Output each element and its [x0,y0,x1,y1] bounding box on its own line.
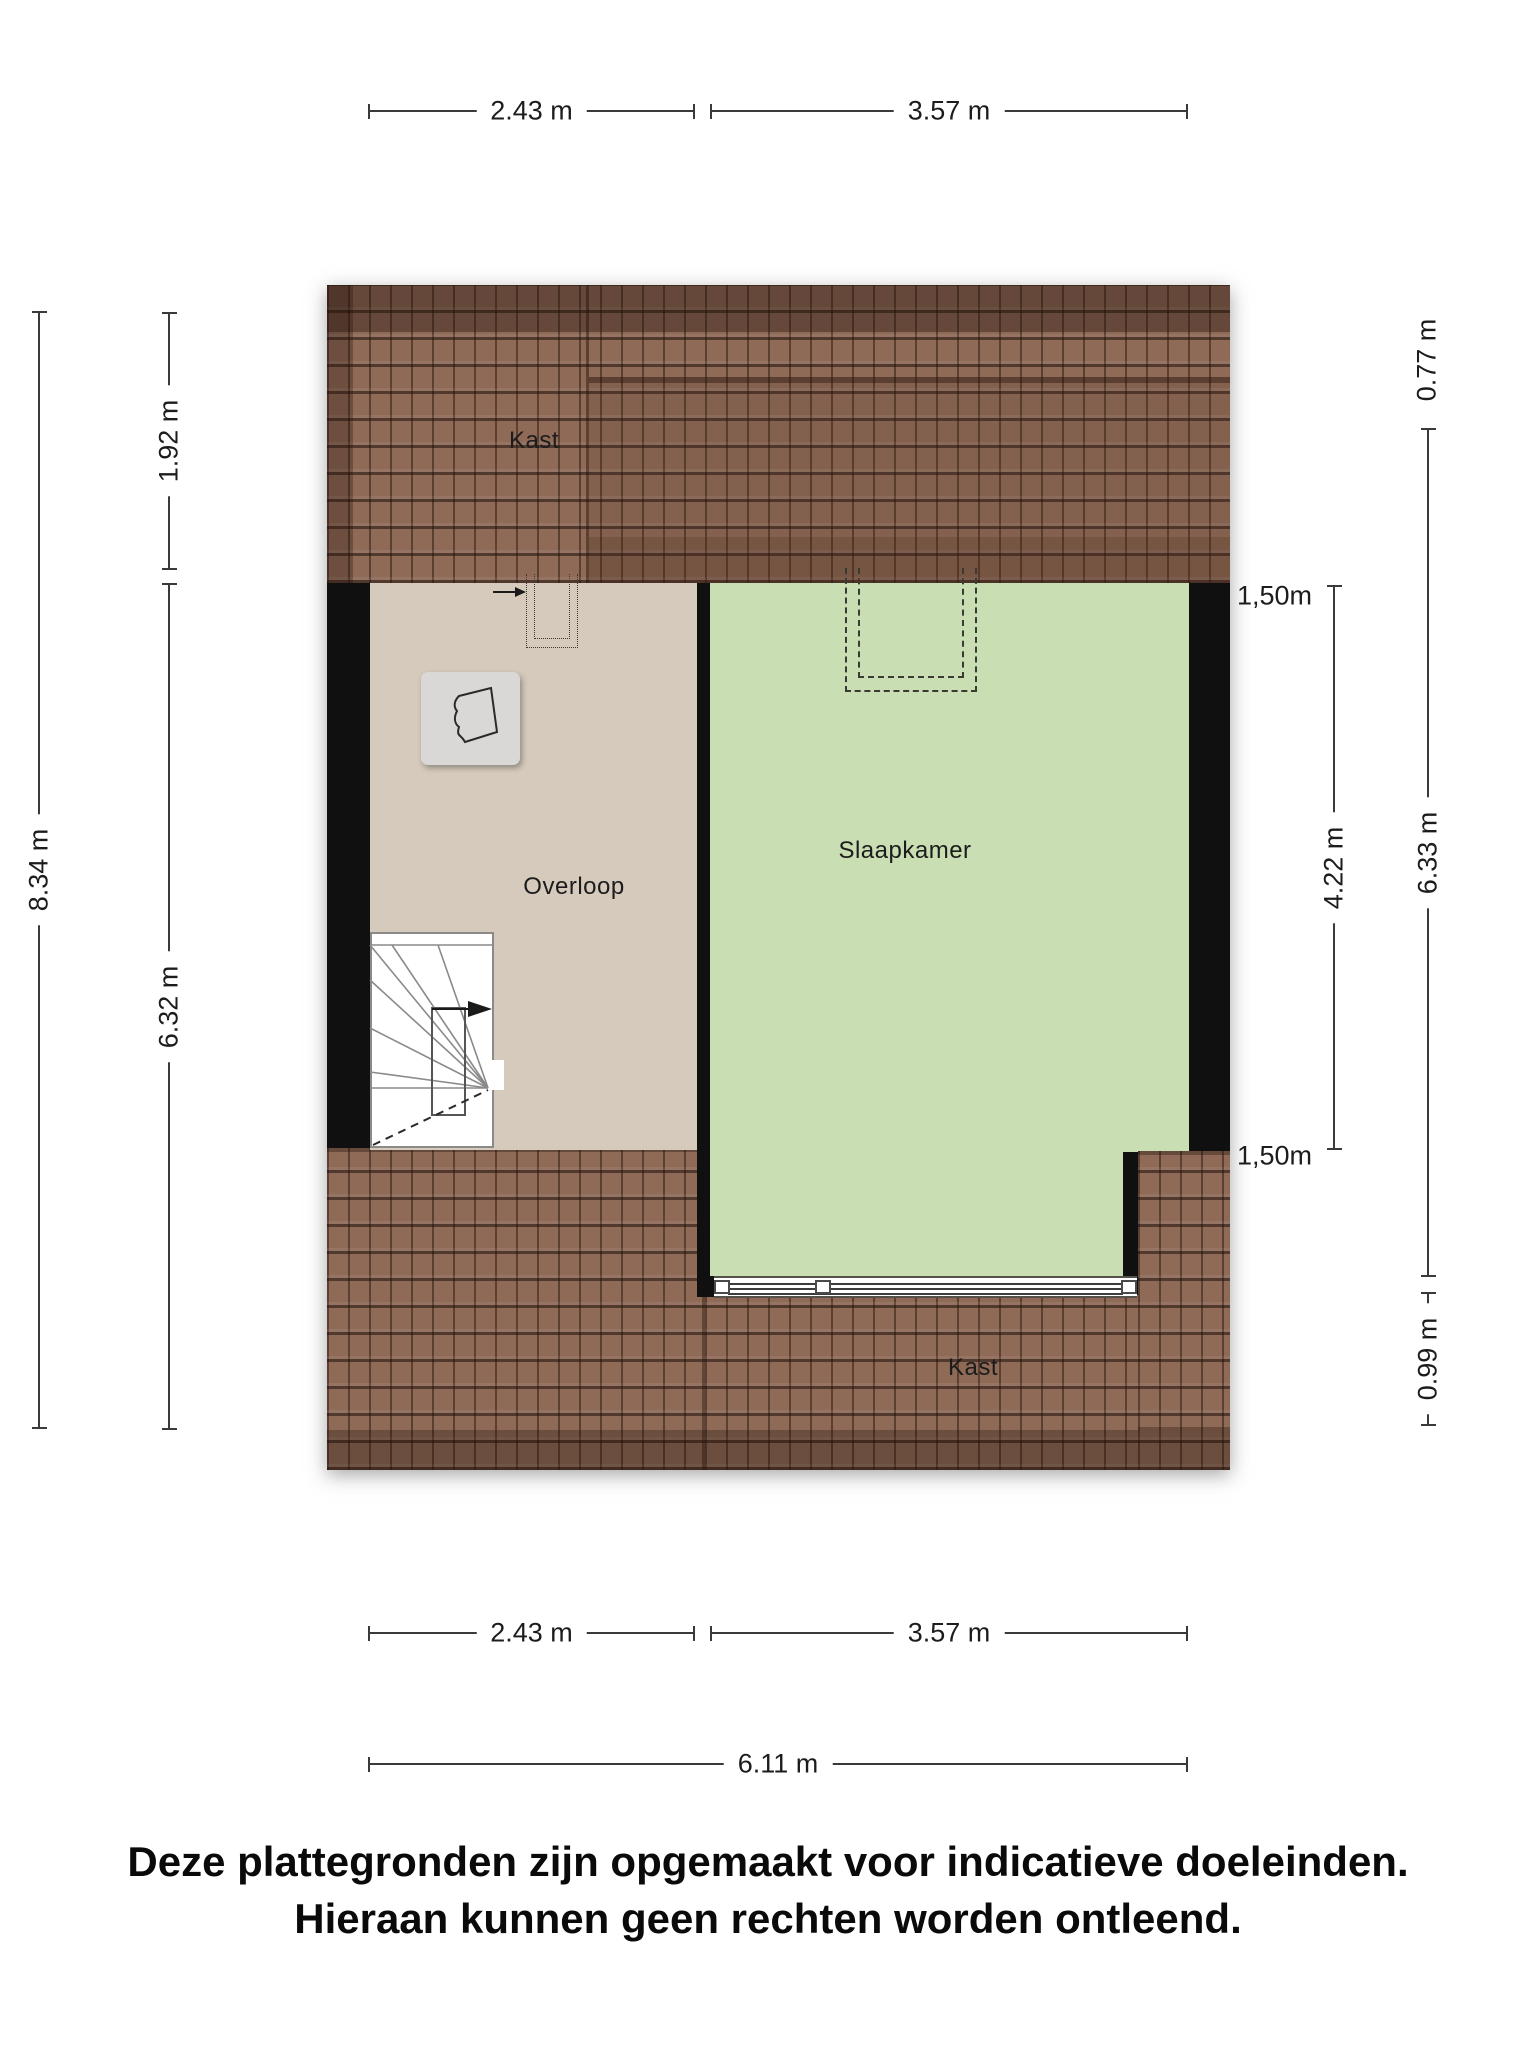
dim-label: 1.92 m [154,386,185,497]
dim-left-total: 8.34 m [38,311,40,1429]
room-label-slaapkamer: Slaapkamer [838,837,971,865]
dim-label: 2.43 m [476,1618,587,1649]
wall-middle-foot [697,1275,714,1297]
dim-label: 4.22 m [1319,812,1350,923]
dim-bottom-slaapkamer: 3.57 m [710,1632,1188,1634]
floorplan-page: Kast Overloop Slaapkamer Kast 2.43 m 3.5… [0,0,1536,2048]
dim-top-slaapkamer: 3.57 m [710,110,1188,112]
wall-right [1189,583,1230,1151]
room-label-overloop: Overloop [523,873,624,901]
window-glazing [728,1283,1123,1295]
dim-label: 6.32 m [154,951,185,1062]
dim-right-main: 6.33 m [1427,428,1429,1277]
dim-label: 8.34 m [24,815,55,926]
stairs-opening [490,1060,504,1090]
dim-label: 2.43 m [476,96,587,127]
roof-top [327,285,1230,583]
dim-label: 3.57 m [894,1618,1005,1649]
skylight-arrow-icon [493,584,527,600]
disclaimer-line-1: Deze plattegronden zijn opgemaakt voor i… [0,1833,1536,1890]
dim-right-slaapkamer: 4.22 m [1333,585,1335,1150]
furniture-icon [421,672,520,765]
building-plan: Kast Overloop Slaapkamer Kast [327,285,1230,1470]
dormer-slaapkamer-inner [858,568,964,678]
dim-right-kast: 0.99 m [1427,1292,1429,1426]
skylight-overloop-inner [534,574,570,639]
knee-wall-label-bottom: 1,50m [1237,1141,1312,1172]
room-label-kast-bottom: Kast [948,1354,998,1382]
room-label-kast-top: Kast [509,427,559,455]
disclaimer-line-2: Hieraan kunnen geen rechten worden ontle… [0,1890,1536,1947]
dim-right-roofstrip: 0.77 m [1412,319,1443,402]
dim-label: 6.11 m [724,1749,833,1780]
wall-middle [697,583,710,1275]
dim-bottom-overloop: 2.43 m [368,1632,695,1634]
dim-left-rooms: 6.32 m [168,583,170,1430]
window-frame-left [714,1280,730,1294]
bedroom-window [714,1276,1137,1298]
wall-left [327,583,370,1148]
stairs-icon [370,932,505,1148]
dim-label: 3.57 m [894,96,1005,127]
wall-stub-right [1123,1152,1138,1295]
dim-left-kast: 1.92 m [168,312,170,570]
knee-wall-label-top: 1,50m [1237,581,1312,612]
dim-bottom-total: 6.11 m [368,1763,1188,1765]
dim-label: 0.99 m [1413,1304,1444,1415]
window-frame-right [1121,1280,1137,1294]
disclaimer-text: Deze plattegronden zijn opgemaakt voor i… [0,1833,1536,1947]
dim-label: 6.33 m [1413,797,1444,908]
dim-top-overloop: 2.43 m [368,110,695,112]
window-mullion [815,1280,831,1294]
